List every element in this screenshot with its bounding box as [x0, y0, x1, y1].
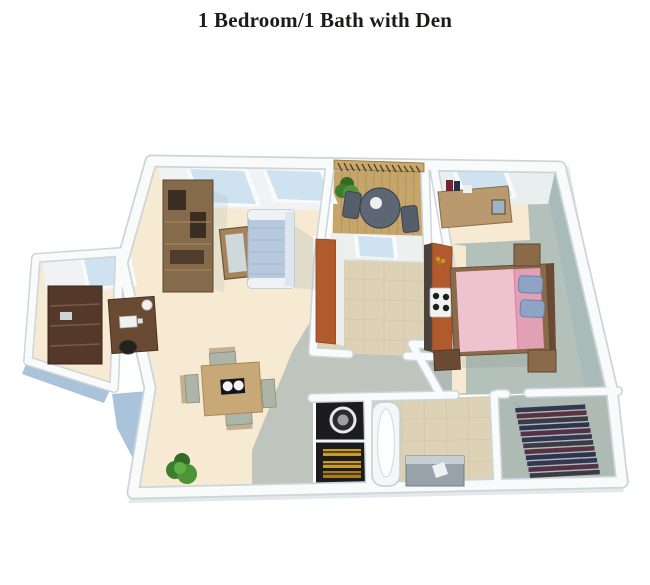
balcony-table-plate: [370, 197, 382, 209]
laundry-divider-wall: [368, 399, 370, 487]
closet-dresser: [433, 349, 460, 370]
pillow-1: [518, 275, 543, 293]
kitchen-counter-left-face: [336, 240, 344, 346]
desk-paper: [463, 185, 472, 193]
den-monitor: [119, 316, 137, 328]
kitchen-window: [358, 236, 394, 258]
bathtub-basin: [378, 409, 395, 477]
floor-plan-page: 1 Bedroom/1 Bath with Den: [0, 0, 650, 585]
vanity-top: [406, 456, 464, 464]
balcony-table: [360, 188, 400, 228]
desk-book-blue: [454, 181, 460, 191]
balcony-chair-right: [401, 205, 420, 233]
den-lamp: [142, 300, 152, 310]
stove-burner-1: [433, 293, 439, 299]
vanity: [406, 456, 464, 486]
sofa: [248, 210, 294, 288]
stove-burner-4: [443, 305, 449, 311]
washer-drum: [338, 415, 349, 426]
dining-chair-east: [261, 379, 276, 408]
bed: [450, 263, 556, 356]
shelf-cubby-1: [168, 190, 186, 210]
closet-divider-wall: [494, 395, 498, 486]
desk-picture-frame: [492, 200, 505, 214]
desk-book-red: [446, 180, 453, 191]
den-keyboard: [138, 318, 143, 323]
floor-plan-image: [0, 0, 650, 585]
stove-burner-3: [433, 304, 439, 310]
nightstand-north: [514, 244, 540, 266]
dining-chair-west: [185, 374, 200, 403]
kitchen-counter-left: [316, 239, 336, 344]
den-bookcase-item: [60, 312, 72, 320]
nightstand-south: [528, 350, 556, 372]
shelf-cabinet: [170, 250, 204, 264]
towel-shelves: [323, 449, 361, 478]
pillow-2: [520, 300, 545, 318]
stove: [430, 288, 451, 317]
shelf-cubby-2: [190, 212, 206, 238]
den-chair: [119, 340, 137, 354]
stove-burner-2: [443, 294, 449, 300]
sofa-back: [285, 212, 294, 286]
blanket: [456, 269, 518, 352]
balcony-chair-left: [342, 191, 361, 219]
